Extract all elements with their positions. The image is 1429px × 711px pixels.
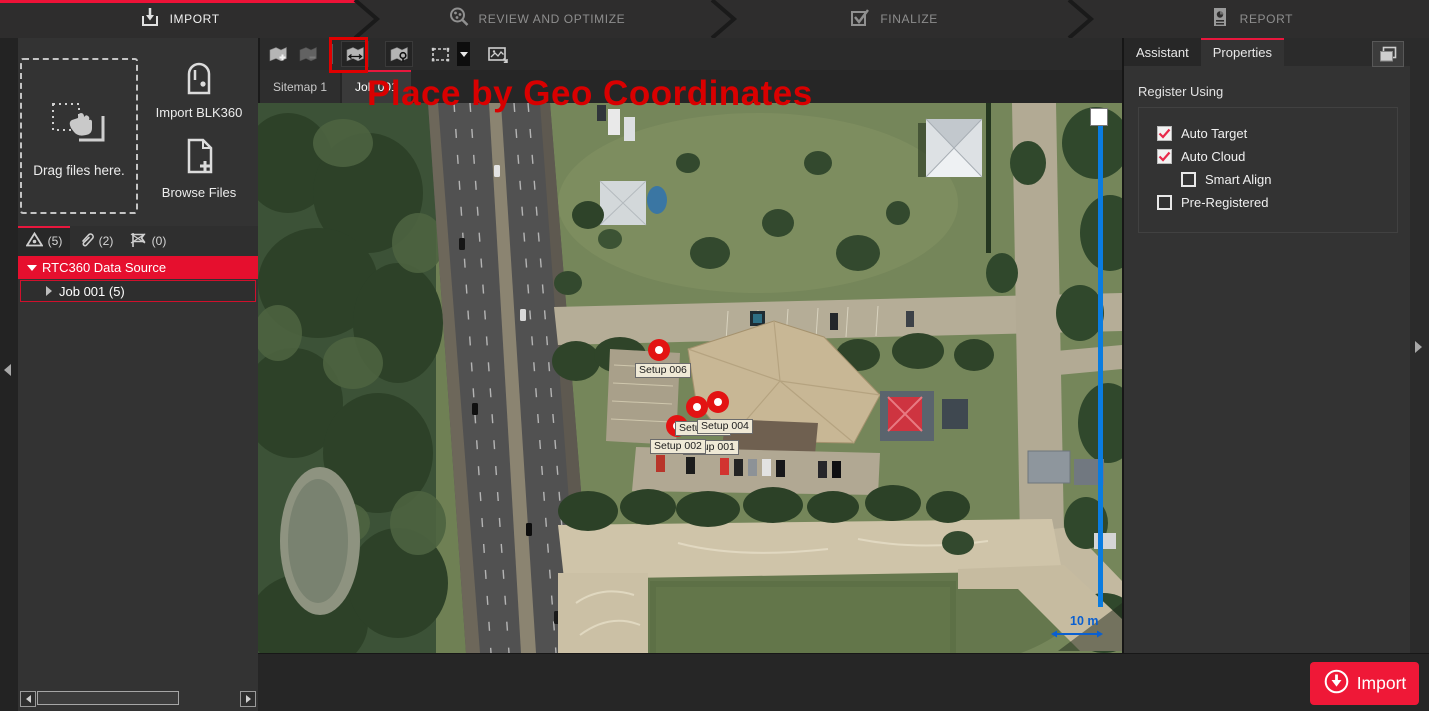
- workflow-bar: IMPORT REVIEW AND OPTIMIZE FINALIZE REPO…: [0, 0, 1429, 39]
- option-label: Auto Target: [1181, 126, 1247, 141]
- tree-item-label: Job 001 (5): [59, 284, 125, 299]
- flagged-flag-icon: [130, 232, 147, 251]
- browse-files-button[interactable]: Browse Files: [162, 185, 236, 200]
- scrollbar-thumb[interactable]: [37, 691, 179, 705]
- scroll-left-arrow-icon: [26, 695, 31, 703]
- option-label: Auto Cloud: [1181, 149, 1245, 164]
- tree-horizontal-scrollbar[interactable]: [20, 690, 256, 706]
- vertical-slider-track[interactable]: [1098, 117, 1103, 607]
- collapse-left-arrow-icon[interactable]: [4, 364, 11, 376]
- project-tree: RTC360 Data Source Job 001 (5): [18, 256, 258, 302]
- aerial-sitemap-image[interactable]: [258, 103, 1122, 653]
- option-pre-registered[interactable]: Pre-Registered: [1157, 195, 1387, 210]
- dropzone-label: Drag files here.: [33, 163, 125, 178]
- undock-panel-button[interactable]: [1372, 41, 1404, 67]
- scroll-right-arrow-icon: [246, 695, 251, 703]
- tab-label: Assistant: [1136, 45, 1189, 60]
- import-circle-arrow-icon: [1323, 668, 1350, 700]
- fence-selection-icon: [430, 44, 452, 65]
- bottom-action-bar: Import: [258, 653, 1429, 711]
- properties-panel: Assistant Properties Register Using Auto…: [1122, 38, 1410, 653]
- dropdown-arrow-icon: [460, 52, 468, 57]
- register-options-group: Auto Target Auto Cloud Smart Align Pre-R…: [1138, 107, 1398, 233]
- tab-count: (2): [99, 234, 114, 248]
- caret-down-icon[interactable]: [27, 265, 37, 271]
- tab-count: (0): [152, 234, 167, 248]
- option-smart-align[interactable]: Smart Align: [1181, 172, 1387, 187]
- check-icon: [1158, 151, 1171, 162]
- annotation-text: Place by Geo Coordinates: [367, 74, 813, 114]
- import-button[interactable]: Import: [1310, 662, 1419, 705]
- tab-flagged[interactable]: (0): [122, 226, 174, 256]
- tree-item-rtc360-data-source[interactable]: RTC360 Data Source: [18, 256, 258, 279]
- workflow-step-label: IMPORT: [170, 12, 220, 26]
- setup-label[interactable]: Setup 004: [697, 419, 753, 434]
- option-label: Smart Align: [1205, 172, 1271, 187]
- map-geo-pin-icon: [389, 45, 410, 64]
- application-window: IMPORT REVIEW AND OPTIMIZE FINALIZE REPO…: [0, 0, 1429, 711]
- scale-bar: [1051, 629, 1103, 639]
- setup-marker-004[interactable]: [707, 391, 729, 413]
- scale-label: 10 m: [1070, 614, 1099, 628]
- left-collapse-rail[interactable]: [0, 38, 18, 711]
- map-remove-icon: [298, 45, 319, 64]
- import-button-label: Import: [1357, 673, 1407, 694]
- check-icon: [1158, 128, 1171, 139]
- tab-links[interactable]: (2): [70, 226, 122, 256]
- checkbox-auto-cloud[interactable]: [1157, 149, 1172, 164]
- import-sidebar: Drag files here. Import BLK360 Browse Fi…: [18, 38, 258, 711]
- fence-select-button[interactable]: [427, 41, 455, 67]
- finalize-checkbox-icon: [848, 5, 872, 34]
- setup-marker-003[interactable]: [686, 396, 708, 418]
- workflow-step-review-and-optimize[interactable]: REVIEW AND OPTIMIZE: [357, 0, 714, 38]
- add-sitemap-button[interactable]: [264, 41, 292, 67]
- place-by-geo-coordinates-button[interactable]: [385, 41, 413, 67]
- tab-count: (5): [48, 234, 63, 248]
- sitemap-toolbar: [258, 38, 1122, 70]
- workflow-chevron-icon: [708, 0, 738, 38]
- scroll-left-button[interactable]: [20, 691, 36, 707]
- expand-right-arrow-icon[interactable]: [1415, 341, 1422, 353]
- workflow-step-finalize[interactable]: FINALIZE: [715, 0, 1072, 38]
- register-using-title: Register Using: [1138, 84, 1398, 99]
- links-paperclip-icon: [79, 232, 94, 251]
- option-label: Pre-Registered: [1181, 195, 1268, 210]
- workflow-step-label: REPORT: [1240, 12, 1293, 26]
- blk360-scanner-icon[interactable]: [182, 58, 216, 101]
- tree-item-label: RTC360 Data Source: [42, 260, 166, 275]
- review-magnifier-icon: [447, 5, 471, 34]
- vertical-slider-handle[interactable]: [1090, 108, 1108, 126]
- import-tray-arrow-icon: [138, 5, 162, 34]
- remove-sitemap-button: [294, 41, 322, 67]
- sitemap-viewport[interactable]: Setup 006 Setup 003 Setup 004 Setup 001 …: [258, 103, 1122, 653]
- setups-triangle-icon: [26, 232, 43, 250]
- scroll-right-button[interactable]: [240, 691, 256, 707]
- tree-item-job-001[interactable]: Job 001 (5): [20, 280, 256, 302]
- workflow-chevron-icon: [1065, 0, 1095, 38]
- annotation-highlight-box: [329, 37, 368, 73]
- workflow-step-report[interactable]: REPORT: [1072, 0, 1429, 38]
- right-panel-tabs: Assistant Properties: [1124, 38, 1410, 66]
- checkbox-smart-align[interactable]: [1181, 172, 1196, 187]
- caret-right-icon[interactable]: [46, 286, 52, 296]
- tab-properties[interactable]: Properties: [1201, 38, 1284, 66]
- image-capture-icon: [487, 44, 510, 65]
- popout-windows-icon: [1379, 46, 1397, 63]
- checkbox-pre-registered[interactable]: [1157, 195, 1172, 210]
- fence-select-dropdown-button[interactable]: [457, 42, 470, 66]
- tab-sitemap-1[interactable]: Sitemap 1: [260, 70, 340, 103]
- import-blk360-button[interactable]: Import BLK360: [156, 105, 243, 120]
- tab-setups[interactable]: (5): [18, 226, 70, 256]
- setup-marker-006[interactable]: [648, 339, 670, 361]
- tab-assistant[interactable]: Assistant: [1124, 38, 1201, 66]
- tab-label: Sitemap 1: [273, 80, 327, 94]
- workflow-step-label: FINALIZE: [880, 12, 937, 26]
- workflow-step-label: REVIEW AND OPTIMIZE: [479, 12, 626, 26]
- checkbox-auto-target[interactable]: [1157, 126, 1172, 141]
- option-auto-cloud[interactable]: Auto Cloud: [1157, 149, 1387, 164]
- setup-label[interactable]: Setup 002: [650, 439, 706, 454]
- workflow-step-import[interactable]: IMPORT: [0, 0, 357, 38]
- report-document-icon: [1208, 5, 1232, 34]
- tab-label: Properties: [1213, 45, 1272, 60]
- drag-files-dropzone[interactable]: Drag files here.: [20, 58, 138, 214]
- drag-hand-icon: [51, 94, 107, 151]
- map-add-icon: [268, 45, 289, 64]
- right-expand-rail[interactable]: [1410, 38, 1429, 653]
- capture-image-button[interactable]: [484, 41, 512, 67]
- project-browser-tabs: (5) (2) (0): [18, 226, 258, 256]
- option-auto-target[interactable]: Auto Target: [1157, 126, 1387, 141]
- file-add-icon[interactable]: [181, 136, 217, 181]
- workflow-chevron-icon: [351, 0, 381, 38]
- setup-label[interactable]: Setup 006: [635, 363, 691, 378]
